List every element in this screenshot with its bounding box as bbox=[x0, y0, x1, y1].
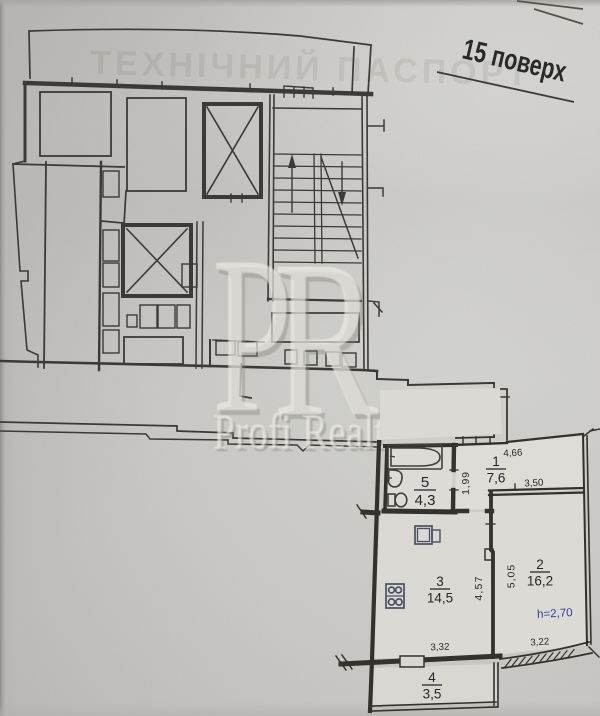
svg-text:1,99: 1,99 bbox=[460, 471, 472, 495]
svg-text:2: 2 bbox=[536, 557, 544, 572]
svg-text:14,5: 14,5 bbox=[427, 591, 453, 606]
svg-text:4,3: 4,3 bbox=[415, 492, 436, 509]
svg-text:4: 4 bbox=[428, 670, 436, 685]
svg-text:h=2,70: h=2,70 bbox=[537, 607, 573, 621]
svg-text:3,22: 3,22 bbox=[530, 636, 550, 648]
svg-text:3,32: 3,32 bbox=[430, 642, 449, 654]
svg-text:3: 3 bbox=[436, 574, 444, 589]
svg-text:4,57: 4,57 bbox=[473, 575, 485, 600]
svg-text:Profi Realt: Profi Realt bbox=[213, 404, 386, 459]
svg-text:7,6: 7,6 bbox=[487, 471, 506, 486]
svg-text:5: 5 bbox=[421, 474, 429, 491]
svg-text:5,05: 5,05 bbox=[506, 564, 518, 588]
svg-text:3,5: 3,5 bbox=[423, 687, 442, 702]
svg-text:3,50: 3,50 bbox=[524, 477, 544, 489]
svg-text:1: 1 bbox=[492, 454, 500, 469]
svg-text:4,66: 4,66 bbox=[503, 447, 523, 459]
svg-text:16,2: 16,2 bbox=[527, 574, 553, 589]
